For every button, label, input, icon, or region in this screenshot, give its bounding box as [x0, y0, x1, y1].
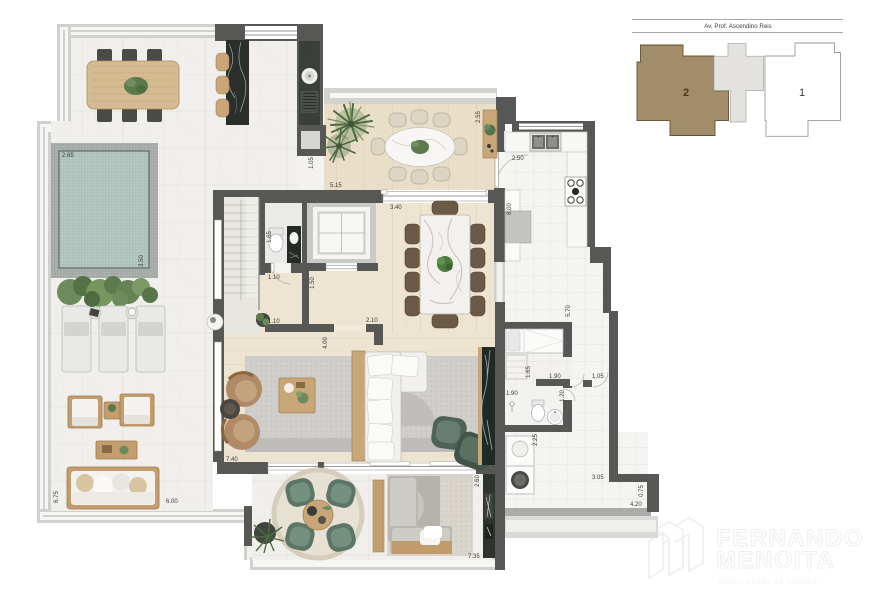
svg-text:5.70: 5.70 — [566, 305, 572, 317]
svg-text:2.65: 2.65 — [62, 153, 74, 159]
svg-text:3.05: 3.05 — [592, 475, 604, 481]
svg-text:1.90: 1.90 — [506, 391, 518, 397]
svg-text:1.05: 1.05 — [309, 157, 315, 169]
svg-text:2.55: 2.55 — [476, 111, 482, 123]
svg-text:1.10: 1.10 — [268, 319, 280, 325]
svg-text:1: 1 — [799, 87, 805, 99]
svg-text:2.10: 2.10 — [366, 318, 378, 324]
svg-text:7.35: 7.35 — [468, 554, 480, 560]
svg-text:2.50: 2.50 — [512, 156, 524, 162]
svg-text:1.90: 1.90 — [549, 374, 561, 380]
svg-text:MENOITA: MENOITA — [716, 547, 835, 574]
svg-text:3.40: 3.40 — [390, 205, 402, 211]
svg-text:6.00: 6.00 — [166, 499, 178, 505]
svg-text:2.25: 2.25 — [533, 434, 539, 446]
svg-text:1.10: 1.10 — [268, 275, 280, 281]
svg-text:8.00: 8.00 — [507, 203, 513, 215]
svg-text:1.65: 1.65 — [526, 366, 532, 378]
svg-text:1.50: 1.50 — [310, 277, 316, 289]
svg-text:Av. Prof. Ascendino Reis: Av. Prof. Ascendino Reis — [704, 23, 772, 30]
svg-text:5.15: 5.15 — [330, 183, 342, 189]
svg-text:3.50: 3.50 — [139, 255, 145, 267]
svg-text:2: 2 — [683, 87, 689, 99]
svg-text:2.60: 2.60 — [305, 46, 311, 58]
svg-text:1.20: 1.20 — [560, 390, 566, 402]
svg-text:1.65: 1.65 — [267, 231, 273, 243]
svg-text:1.05: 1.05 — [592, 374, 604, 380]
svg-text:7.40: 7.40 — [226, 457, 238, 463]
svg-text:2.60: 2.60 — [475, 475, 481, 487]
svg-text:ARQUITETURA DE VENDAS: ARQUITETURA DE VENDAS — [718, 580, 818, 586]
svg-text:0.75: 0.75 — [639, 485, 645, 497]
svg-text:6.75: 6.75 — [54, 491, 60, 503]
svg-text:4.20: 4.20 — [630, 502, 642, 508]
svg-text:4.00: 4.00 — [323, 337, 329, 349]
